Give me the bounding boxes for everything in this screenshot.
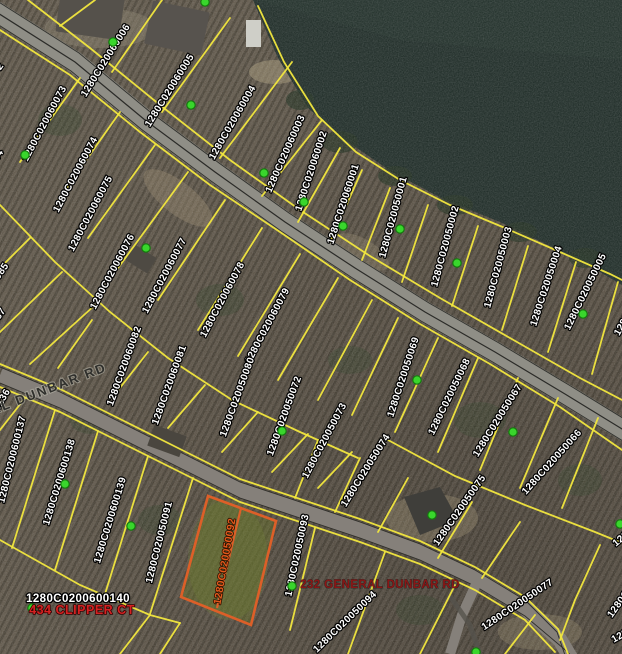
- parcel-marker-dot[interactable]: [579, 310, 587, 318]
- parcel-map-svg[interactable]: 1280C0200600061280C0200600051280C0200600…: [0, 0, 622, 654]
- parcel-marker-dot[interactable]: [260, 169, 268, 177]
- parcel-marker-dot[interactable]: [127, 522, 135, 530]
- parcel-marker-dot[interactable]: [61, 480, 69, 488]
- parcel-marker-dot[interactable]: [453, 259, 461, 267]
- parcel-marker-dot[interactable]: [472, 648, 480, 654]
- parcel-marker-dot[interactable]: [109, 38, 117, 46]
- parcel-marker-dot[interactable]: [509, 428, 517, 436]
- parcel-marker-dot[interactable]: [413, 376, 421, 384]
- parcel-marker-dot[interactable]: [288, 582, 296, 590]
- parcel-marker-dot[interactable]: [142, 244, 150, 252]
- address-label: 434 CLIPPER CT: [29, 603, 135, 617]
- parcel-marker-dot[interactable]: [616, 520, 622, 528]
- parcel-marker-dot[interactable]: [339, 222, 347, 230]
- parcel-marker-dot[interactable]: [278, 427, 286, 435]
- parcel-marker-dot[interactable]: [396, 225, 404, 233]
- parcel-marker-dot[interactable]: [201, 0, 209, 6]
- dock: [246, 20, 261, 47]
- parcel-marker-dot[interactable]: [428, 511, 436, 519]
- address-label: 232 GENERAL DUNBAR RD: [300, 579, 460, 591]
- parcel-marker-dot[interactable]: [187, 101, 195, 109]
- map-canvas[interactable]: 1280C0200600061280C0200600051280C0200600…: [0, 0, 622, 654]
- parcel-marker-dot[interactable]: [21, 151, 29, 159]
- parcel-marker-dot[interactable]: [300, 198, 308, 206]
